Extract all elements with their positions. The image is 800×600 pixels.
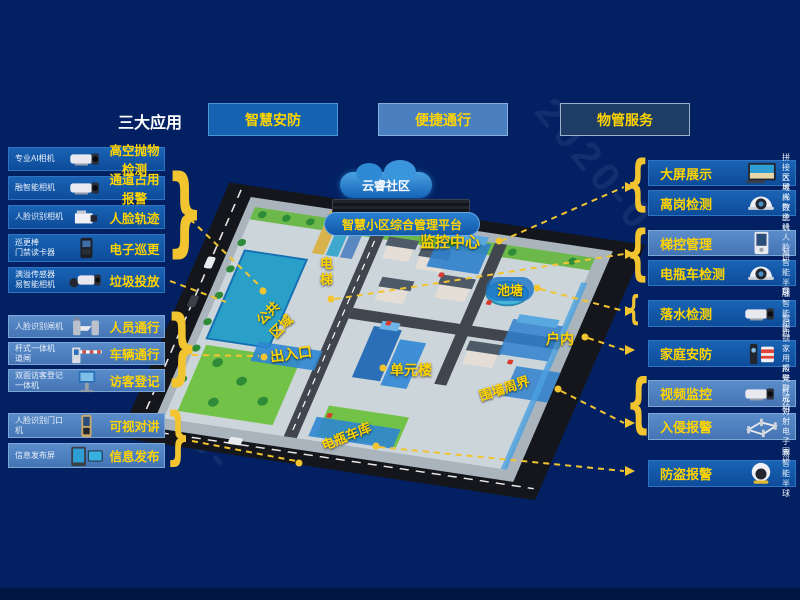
doorphone-icon: [65, 414, 107, 438]
reader-icon: [65, 236, 107, 260]
feature-label: 通道占用报警: [107, 169, 162, 207]
bullet-cam2-icon: [65, 268, 107, 292]
bullet-cam-icon: [65, 176, 107, 200]
screens-icon: [65, 444, 107, 468]
bullet-cam-icon: [65, 147, 107, 171]
barrier-icon: [65, 342, 107, 366]
left-feature-row-6[interactable]: 杆式一体机 道闸车辆通行: [8, 342, 165, 365]
smart-community-infographic: 2020-0 33- 三大应用 智慧安防 便捷通行 物管服务: [0, 0, 800, 600]
left-feature-row-4[interactable]: 满溢传感器 易智能相机垃圾投放: [8, 267, 165, 293]
device-label: 人脸识别闸机: [11, 322, 65, 332]
bullet-cam-icon: [740, 302, 782, 326]
page-title: 三大应用: [118, 109, 182, 133]
feature-label: 电子巡更: [107, 239, 162, 258]
right-feature-row-0[interactable]: 大屏展示拼接大屏: [648, 160, 796, 186]
feature-label: 垃圾投放: [107, 271, 162, 290]
bullet-cam-icon: [740, 382, 782, 406]
app-button-security[interactable]: 智慧安防: [208, 103, 338, 136]
feature-label: 防盗报警: [651, 464, 740, 483]
feature-label: 电瓶车检测: [651, 264, 740, 283]
feature-label: 信息发布: [107, 446, 162, 465]
panel-icon: [740, 231, 782, 255]
device-label: 融智能相机: [11, 183, 65, 193]
feature-label: 视频监控: [651, 384, 740, 403]
device-label: 满溢传感器 易智能相机: [11, 270, 65, 290]
cloud-platform-badge: 云睿社区: [340, 172, 432, 198]
left-feature-row-2[interactable]: 人脸识别相机人脸轨迹: [8, 205, 165, 229]
feature-label: 车辆通行: [107, 344, 162, 363]
feature-label: 家庭安防: [651, 344, 740, 363]
right-feature-row-5[interactable]: 家庭安防智能锁 家用报警器: [648, 340, 796, 367]
device-label: 专业AI相机: [11, 154, 65, 164]
app-button-access[interactable]: 便捷通行: [378, 103, 508, 136]
right-feature-row-8[interactable]: 防盗报警易智能半球: [648, 460, 796, 487]
feature-label: 人员通行: [107, 317, 162, 336]
feature-label: 落水检测: [651, 304, 740, 323]
device-label: 杆式一体机 道闸: [11, 344, 65, 364]
device-label: 巡更棒 门禁读卡器: [11, 238, 65, 258]
cloud-label: 云睿社区: [362, 177, 410, 194]
feature-label: 大屏展示: [651, 164, 740, 183]
dome-cam-icon: [740, 261, 782, 285]
feature-label: 离岗检测: [651, 194, 740, 213]
left-feature-row-9[interactable]: 信息发布屏信息发布: [8, 443, 165, 468]
left-feature-row-3[interactable]: 巡更棒 门禁读卡器电子巡更: [8, 234, 165, 262]
fence-icon: [740, 415, 782, 439]
right-feature-row-4[interactable]: 落水检测融智能相机: [648, 300, 796, 327]
bottom-bar: [0, 588, 800, 600]
community-map-illustration: [185, 192, 645, 507]
device-label: 人脸识别门口机: [11, 416, 65, 436]
right-feature-row-2[interactable]: 梯控管理梯控主机 人脸识别门禁: [648, 230, 796, 256]
eyeball-cam-icon: [740, 462, 782, 486]
platform-banner: 智慧小区综合管理平台: [324, 212, 480, 236]
feature-label: 可视对讲: [107, 416, 162, 435]
right-feature-row-1[interactable]: 离岗检测区域人数统计: [648, 190, 796, 216]
dome-cam-icon: [740, 191, 782, 215]
feature-label: 梯控管理: [651, 234, 740, 253]
device-label: 易智能半球: [782, 449, 793, 499]
device-label: 人脸识别相机: [11, 212, 65, 222]
left-feature-row-7[interactable]: 双面访客登记 一体机访客登记: [8, 369, 165, 392]
right-feature-row-7[interactable]: 入侵报警红外对射 电子围栏: [648, 413, 796, 440]
box-cam-icon: [65, 205, 107, 229]
map-label-pond-pill: 池塘: [486, 277, 534, 301]
map-label-pond: 池塘: [497, 280, 523, 299]
lock-siren-icon: [740, 342, 782, 366]
feature-label: 访客登记: [107, 371, 162, 390]
right-feature-row-3[interactable]: 电瓶车检测易智能半球: [648, 260, 796, 286]
right-feature-row-6[interactable]: 视频监控声光警戒相机: [648, 380, 796, 407]
left-feature-row-0[interactable]: 专业AI相机高空抛物检测: [8, 147, 165, 171]
device-label: 双面访客登记 一体机: [11, 371, 65, 391]
left-feature-row-5[interactable]: 人脸识别闸机人员通行: [8, 315, 165, 338]
turnstile-icon: [65, 315, 107, 339]
left-feature-row-1[interactable]: 融智能相机通道占用报警: [8, 176, 165, 200]
feature-label: 人脸轨迹: [107, 208, 162, 227]
videowall-icon: [740, 161, 782, 185]
device-label: 信息发布屏: [11, 451, 65, 461]
app-button-property[interactable]: 物管服务: [560, 103, 690, 136]
kiosk-icon: [65, 369, 107, 393]
feature-label: 入侵报警: [651, 417, 740, 436]
left-feature-row-8[interactable]: 人脸识别门口机可视对讲: [8, 413, 165, 438]
